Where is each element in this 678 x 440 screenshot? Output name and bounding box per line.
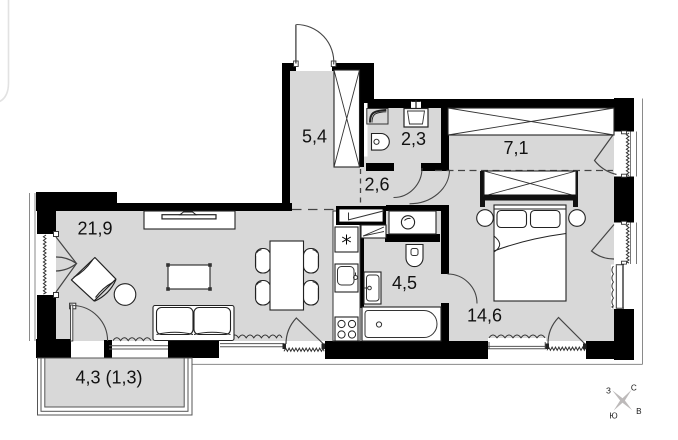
svg-text:14,6: 14,6 [467, 306, 502, 326]
svg-text:Ю: Ю [609, 412, 617, 421]
svg-text:В: В [636, 407, 642, 416]
svg-text:5,4: 5,4 [302, 127, 327, 147]
svg-text:2,6: 2,6 [364, 175, 389, 195]
svg-text:21,9: 21,9 [77, 219, 112, 239]
svg-text:4,5: 4,5 [392, 273, 417, 293]
svg-text:З: З [606, 387, 611, 396]
svg-text:4,3 (1,3): 4,3 (1,3) [75, 368, 142, 388]
svg-text:7,1: 7,1 [503, 138, 528, 158]
svg-text:2,3: 2,3 [401, 129, 426, 149]
svg-text:С: С [631, 384, 637, 393]
